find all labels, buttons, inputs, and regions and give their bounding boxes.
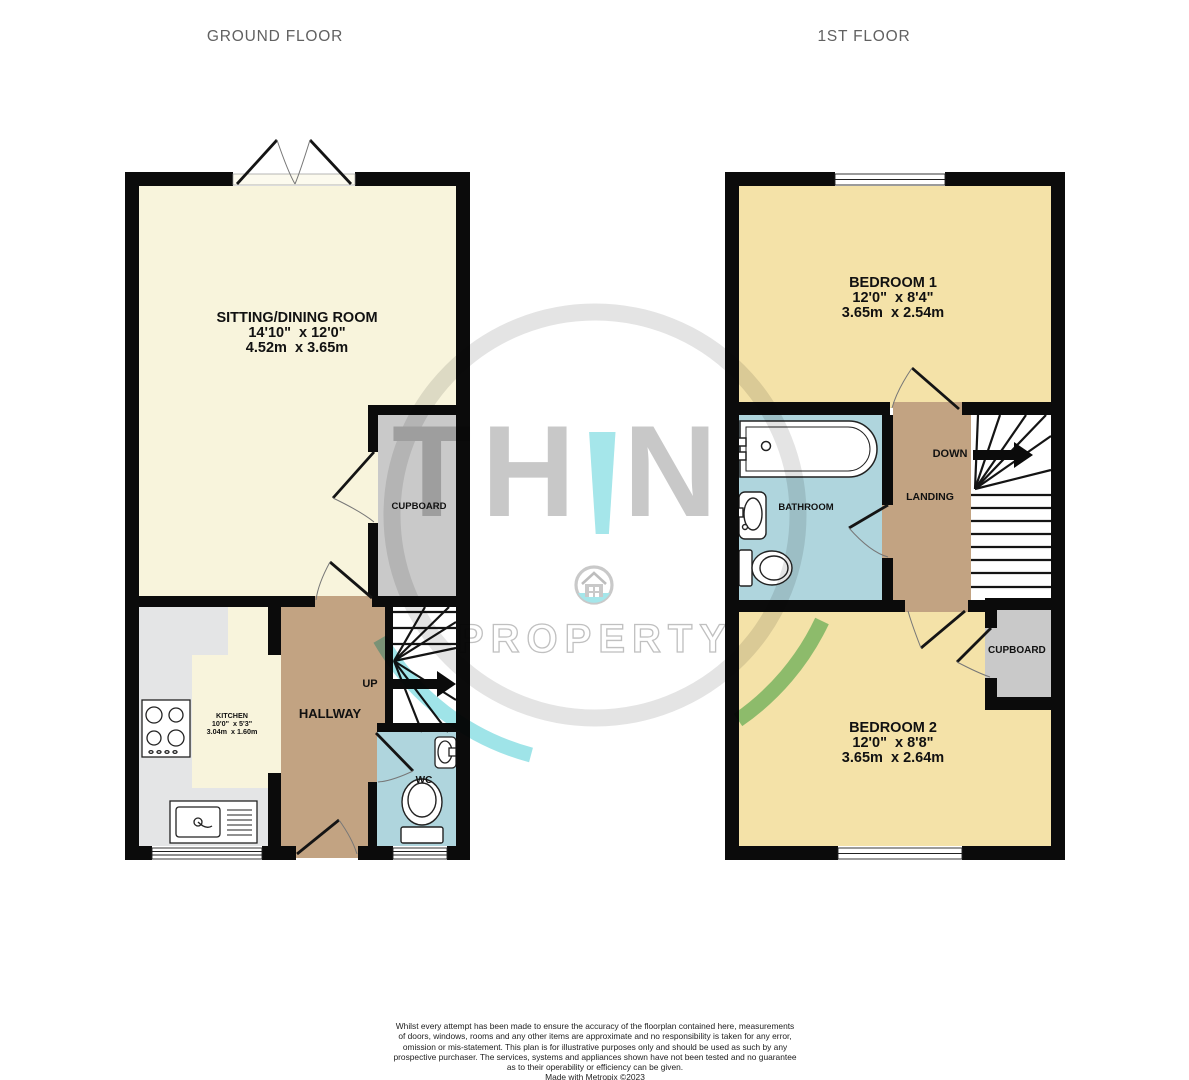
sitting-dining-room-label: SITTING/DINING ROOM 14'10" x 12'0" 4.52m…: [216, 311, 377, 357]
bathroom-label: BATHROOM: [778, 503, 833, 513]
ground-cupboard-label: CUPBOARD: [392, 502, 447, 512]
stairs-up-label: UP: [362, 678, 377, 690]
stairs-down-label: DOWN: [933, 448, 968, 460]
first-floor-cupboard-label: CUPBOARD: [988, 645, 1050, 656]
disclaimer-line: as to their operability or efficiency ca…: [285, 1062, 905, 1072]
disclaimer-line: Whilst every attempt has been made to en…: [285, 1021, 905, 1031]
floorplan-drawing: [0, 0, 1189, 1080]
wc-toilet-icon: [401, 779, 443, 843]
bathroom-toilet-icon: [739, 550, 792, 586]
bathroom-basin-icon: [736, 492, 766, 539]
wc-window: [393, 848, 447, 859]
made-with-credit: Made with Metropix ©2023: [285, 1072, 905, 1080]
ground-floor-title: GROUND FLOOR: [207, 28, 343, 46]
wc-basin-icon: [435, 737, 456, 768]
first-floor-title: 1ST FLOOR: [817, 28, 910, 46]
bathtub-icon: [737, 421, 877, 477]
bedroom1-window: [835, 174, 945, 185]
ground-floor-plan: [125, 140, 470, 860]
disclaimer-line: omission or mis-statement. This plan is …: [285, 1042, 905, 1052]
floorplan-page: PROPERTY THNK GROUND FLOOR 1ST FLOOR SIT…: [0, 0, 1189, 1080]
disclaimer: Whilst every attempt has been made to en…: [285, 1021, 905, 1080]
bedroom2-window: [838, 848, 962, 859]
patio-door-sill: [233, 174, 355, 185]
bedroom2-label: BEDROOM 2 12'0" x 8'8" 3.65m x 2.64m: [842, 721, 944, 767]
wc-label: WC: [416, 775, 433, 786]
disclaimer-line: of doors, windows, rooms and any other i…: [285, 1031, 905, 1041]
hob-icon: [142, 700, 190, 757]
hallway-label: HALLWAY: [299, 707, 361, 721]
landing-label: LANDING: [906, 491, 954, 503]
disclaimer-line: prospective purchaser. The services, sys…: [285, 1052, 905, 1062]
kitchen-window: [152, 848, 262, 859]
bedroom1-label: BEDROOM 1 12'0" x 8'4" 3.65m x 2.54m: [842, 276, 944, 322]
kitchen-sink-icon: [170, 801, 257, 843]
kitchen-label: KITCHEN 10'0" x 5'3" 3.04m x 1.60m: [207, 712, 258, 737]
